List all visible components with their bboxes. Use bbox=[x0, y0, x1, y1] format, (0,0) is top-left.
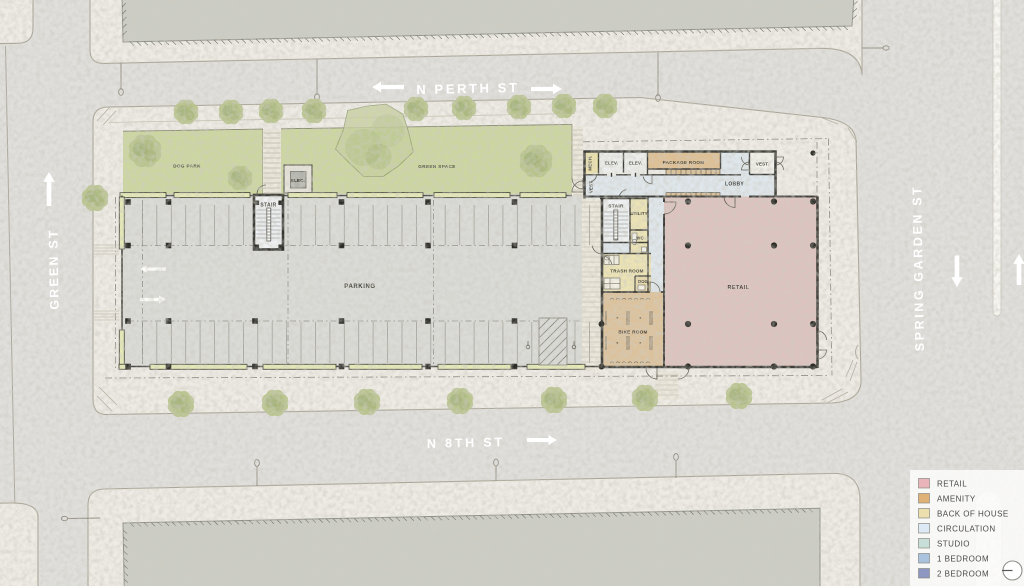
svg-text:1 BEDROOM: 1 BEDROOM bbox=[937, 555, 989, 564]
svg-text:2 BEDROOM: 2 BEDROOM bbox=[937, 570, 989, 579]
svg-text:GREEN ST: GREEN ST bbox=[46, 228, 61, 310]
svg-text:AMENITY: AMENITY bbox=[937, 495, 976, 504]
svg-text:N PERTH ST: N PERTH ST bbox=[416, 80, 520, 97]
svg-text:STUDIO: STUDIO bbox=[937, 540, 970, 549]
svg-text:CIRCULATION: CIRCULATION bbox=[937, 525, 996, 534]
svg-text:N 8TH ST: N 8TH ST bbox=[427, 435, 505, 451]
svg-text:BACK OF HOUSE: BACK OF HOUSE bbox=[937, 510, 1009, 519]
svg-text:RETAIL: RETAIL bbox=[937, 480, 967, 489]
svg-text:SPRING GARDEN ST: SPRING GARDEN ST bbox=[910, 185, 927, 352]
